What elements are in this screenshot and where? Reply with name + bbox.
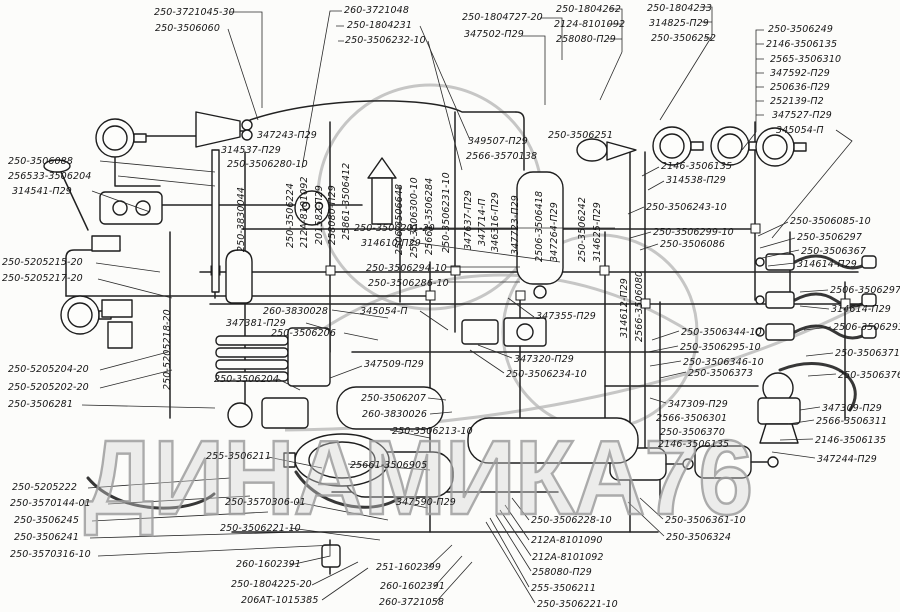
part-label: 250-3506228-10: [531, 516, 612, 526]
part-label: 250-3506207: [361, 394, 426, 404]
part-label: 250-3506286-10: [368, 279, 449, 289]
part-label: 345054-П: [360, 307, 408, 317]
part-label: 250-3506371: [835, 349, 900, 359]
part-label: 347637-П29: [464, 190, 474, 250]
part-label: 251-1602399: [376, 563, 441, 573]
part-label: 250-5205204-20: [8, 365, 89, 375]
part-label: 2506-3506418: [535, 191, 545, 262]
part-label: 250-3506085-10: [790, 217, 871, 227]
part-label: 25661-3506905: [350, 461, 427, 471]
part-label: 250-3506370: [660, 428, 725, 438]
part-label: 347309-П29: [668, 400, 728, 410]
part-label: 250-3506346-10: [683, 358, 764, 368]
part-label: 250-3506344-10: [681, 328, 762, 338]
part-label: 250-3506221-10: [537, 600, 618, 610]
part-label: 347309-П29: [822, 404, 882, 414]
part-label: 255-3506211: [206, 452, 271, 462]
part-label: 252139-П2: [770, 97, 824, 107]
part-label: 347320-П29: [514, 355, 574, 365]
part-label: 347502-П29: [464, 30, 524, 40]
part-label: 250-1804233: [647, 4, 712, 14]
part-label: 25861-3506412: [342, 163, 352, 240]
part-label: 250-1804225-20: [231, 580, 312, 590]
part-label: 260-3721048: [344, 6, 409, 16]
part-label: 250-3506376: [838, 371, 900, 381]
part-label: 260-3830026: [362, 410, 427, 420]
part-label: 250-3506242: [578, 197, 588, 262]
part-label: 347243-П29: [257, 131, 317, 141]
part-label: 250-3506252: [651, 34, 716, 44]
part-label: 250-3506297: [797, 233, 862, 243]
part-label: 2506-3506297: [830, 286, 900, 296]
part-label: 250-3506299-10: [653, 228, 734, 238]
part-label: 250-3506206: [271, 329, 336, 339]
part-label: 250-3506373: [688, 369, 753, 379]
part-label: 250-3570316-10: [10, 550, 91, 560]
part-label: 250-3506088: [8, 157, 73, 167]
part-label: 255-3506211: [531, 584, 596, 594]
part-label: 2566-3506301: [656, 414, 727, 424]
part-label: 250-3506281: [8, 400, 73, 410]
part-label: 2146-3506135: [661, 162, 732, 172]
part-label: 258080-П29: [556, 35, 616, 45]
part-label: 314541-П29: [12, 187, 72, 197]
part-label: 250-5205218-20: [163, 309, 173, 390]
part-label: 250-5205217-20: [2, 274, 83, 284]
part-label: 314612-П29: [620, 278, 630, 338]
part-label: 2565-3506310: [770, 55, 841, 65]
part-label: 347509-П29: [364, 360, 424, 370]
part-label: 314537-П29: [221, 146, 281, 156]
part-label: 260-3721058: [379, 598, 444, 608]
part-label: 250-3506295-10: [680, 343, 761, 353]
part-label: 314538-П29: [666, 176, 726, 186]
part-label: 347592-П29: [770, 69, 830, 79]
part-label: 260-1602391: [380, 582, 445, 592]
part-label: 250-5205202-20: [8, 383, 89, 393]
part-label: 250-1804727-20: [462, 13, 543, 23]
part-label: 258080-П29: [328, 185, 338, 245]
part-label: 250-3506241: [14, 533, 79, 543]
part-label: 2506-3506293: [833, 323, 900, 333]
part-label: 250-5205215-20: [2, 258, 83, 268]
part-label: 25661-3506284: [425, 178, 435, 255]
part-label: 250-3506231-10: [442, 172, 452, 253]
part-label: 250636-П29: [770, 83, 830, 93]
part-label: 347723-П29: [511, 195, 521, 255]
part-label: 250-1804231: [347, 21, 412, 31]
part-label: 250-3506224: [286, 183, 296, 248]
part-label: 250-3506280-10: [227, 160, 308, 170]
part-label: 314625-П29: [593, 202, 603, 262]
part-label: 347355-П29: [536, 312, 596, 322]
part-label: 260-1602391: [236, 560, 301, 570]
part-label: 349507-П29: [468, 137, 528, 147]
part-label: 346316-П29: [491, 192, 501, 252]
part-label: 260-3830028: [263, 307, 328, 317]
part-label: 250-3570144-01: [10, 499, 91, 509]
part-label: 250-3570306-01: [225, 498, 306, 508]
part-label: 250-3506060: [155, 24, 220, 34]
part-labels-layer: 250-3721045-30250-3506060260-3721048250-…: [0, 0, 900, 612]
part-label: 2566-3570138: [466, 152, 537, 162]
part-label: 250-3506300-10: [410, 177, 420, 258]
part-label: 2146-3506135: [658, 440, 729, 450]
part-label: 347590-П29: [396, 498, 456, 508]
part-label: 250-3506249: [768, 25, 833, 35]
part-label: 2124-8101092: [554, 20, 625, 30]
part-label: 347527-П29: [772, 111, 832, 121]
part-label: 250-1804262: [556, 5, 621, 15]
part-label: 250-3506204: [214, 375, 279, 385]
part-label: 212А-8101092: [532, 553, 604, 563]
part-label: 250-3506232-10: [345, 36, 426, 46]
part-label: 250-3830044: [237, 187, 247, 252]
part-label: 256533-3506204: [8, 172, 91, 182]
part-label: 2566-3506080: [635, 271, 645, 342]
part-label: 314614-П29: [797, 260, 857, 270]
part-label: 212А-8101092: [300, 176, 310, 248]
part-label: 347714-П: [478, 198, 488, 246]
part-label: 250-3506361-10: [665, 516, 746, 526]
part-label: 250-3506234-10: [506, 370, 587, 380]
diagram-stage: ДИНАМИКА76 250-3721045-30250-3506060260-…: [0, 0, 900, 612]
part-label: 206АТ-1015385: [241, 596, 318, 606]
part-label: 250-3506213-10: [392, 427, 473, 437]
part-label: 314825-П29: [649, 19, 709, 29]
part-label: 250-3721045-30: [154, 8, 235, 18]
part-label: 2506-3506648: [395, 184, 405, 255]
part-label: 250-3506251: [548, 131, 613, 141]
part-label: 250-3506367: [801, 247, 866, 257]
part-label: 347264-П29: [550, 202, 560, 262]
part-label: 250-5205222: [12, 483, 77, 493]
part-label: 250-3506245: [14, 516, 79, 526]
part-label: 212А-8101090: [531, 536, 603, 546]
part-label: 345054-П: [776, 126, 824, 136]
part-label: 258080-П29: [532, 568, 592, 578]
part-label: 2146-3506135: [815, 436, 886, 446]
part-label: 250-3506221-10: [220, 524, 301, 534]
part-label: 2146-3506135: [766, 40, 837, 50]
part-label: 250-3506243-10: [646, 203, 727, 213]
part-label: 2566-3506311: [816, 417, 887, 427]
part-label: 201582-П29: [315, 185, 325, 245]
part-label: 250-3506086: [660, 240, 725, 250]
part-label: 314614-П29: [831, 305, 891, 315]
part-label: 347244-П29: [817, 455, 877, 465]
part-label: 250-3506324: [666, 533, 731, 543]
part-label: 250-3506294-10: [366, 264, 447, 274]
